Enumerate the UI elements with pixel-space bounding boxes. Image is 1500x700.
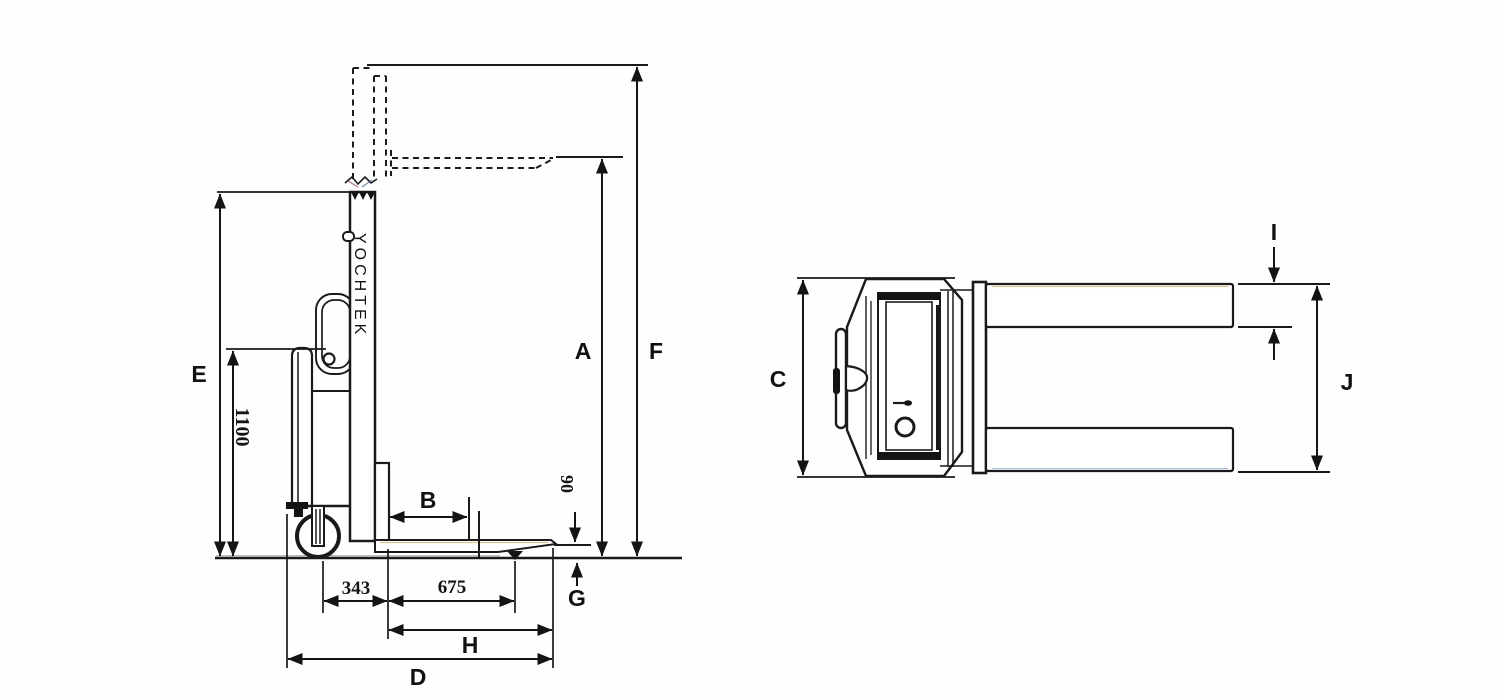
dim-label-f: F [649,338,663,364]
mast-top-serration [351,192,375,200]
compartment-bottom-bar [878,452,940,459]
key-head [904,400,912,406]
side-view: YOCHTEK [191,65,682,690]
dim-label-a: A [575,338,592,364]
fork-side [375,540,556,552]
brand-text: YOCHTEK [351,233,368,338]
top-view: C I J [770,219,1354,477]
dim-label-j: J [1341,369,1354,395]
dim-value-90: 90 [557,475,577,493]
dim-label-h: H [462,632,479,658]
dim-value-1100: 1100 [231,408,253,447]
stacker-top-body [833,279,1233,476]
brake-pedal-pin [294,509,303,517]
stacker-dimension-diagram: YOCHTEK [0,0,1500,700]
dim-label-g: G [568,585,586,611]
diagram-svg: YOCHTEK [0,0,1500,700]
dim-value-343: 343 [342,578,371,599]
tiller-post [292,348,312,506]
brake-pedal [286,502,308,509]
raised-mast-phantom [353,68,553,181]
handle-knob [324,354,335,365]
caster-fork [312,506,324,546]
dim-label-e: E [191,361,206,387]
dim-label-i: I [1271,219,1277,245]
fork-top-upper [986,284,1233,327]
carriage-plate-top [973,282,986,473]
tiller-grip [833,368,840,394]
dim-label-d: D [410,664,427,690]
dim-label-b: B [420,487,437,513]
fork-carriage-plate [375,463,389,543]
extension-lines [217,65,648,668]
dim-label-c: C [770,366,787,392]
compartment-top-bar [878,293,940,300]
ignition-ring [896,418,914,436]
fork-top-lower [986,428,1233,471]
dim-value-675: 675 [438,577,467,598]
